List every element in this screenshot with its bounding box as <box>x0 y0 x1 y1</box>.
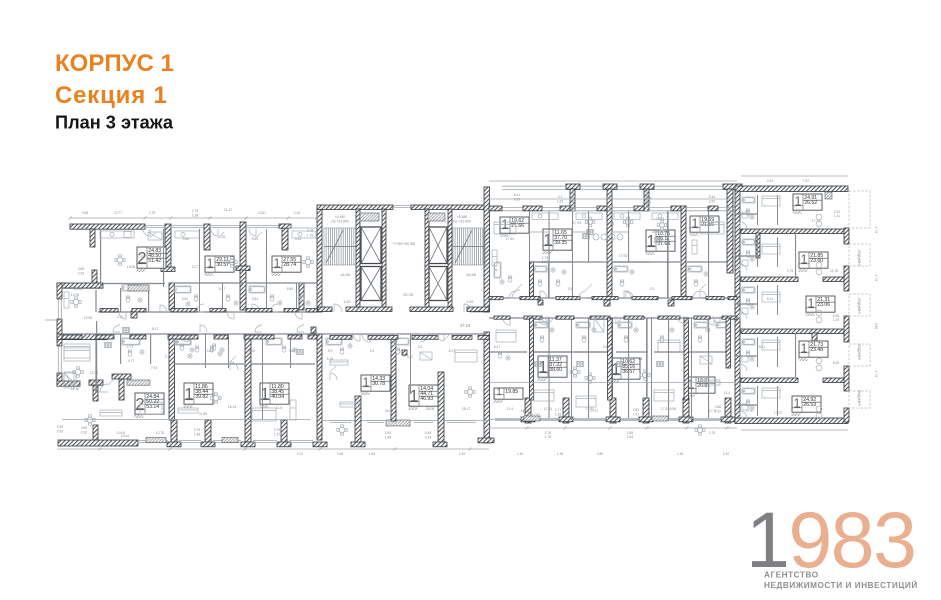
svg-text:1: 1 <box>184 385 193 403</box>
svg-text:+7.980 +56.380: +7.980 +56.380 <box>393 242 416 246</box>
svg-text:3.86: 3.86 <box>715 405 721 409</box>
svg-text:2.92: 2.92 <box>57 430 64 434</box>
svg-text:17.27: 17.27 <box>774 411 782 415</box>
svg-text:5.8: 5.8 <box>638 357 643 361</box>
svg-text:12.38: 12.38 <box>71 387 79 391</box>
svg-text:4.29: 4.29 <box>219 235 226 239</box>
svg-text:30.57: 30.57 <box>216 262 229 268</box>
svg-text:3.1: 3.1 <box>558 195 563 199</box>
svg-text:6.47: 6.47 <box>219 287 226 291</box>
svg-text:1.48: 1.48 <box>677 452 683 456</box>
svg-text:38.60: 38.60 <box>549 367 562 373</box>
svg-text:17.31: 17.31 <box>544 407 552 411</box>
svg-text:30.78: 30.78 <box>372 381 385 387</box>
svg-text:ЛОДЖИЯ: ЛОДЖИЯ <box>857 250 861 266</box>
svg-text:1.42: 1.42 <box>715 410 721 414</box>
svg-text:40.04: 40.04 <box>271 394 284 400</box>
svg-text:1.38: 1.38 <box>557 452 563 456</box>
svg-text:1: 1 <box>800 341 807 355</box>
svg-text:28.74: 28.74 <box>283 262 296 268</box>
svg-text:1.63: 1.63 <box>557 200 564 204</box>
svg-text:2.75: 2.75 <box>787 269 793 273</box>
svg-text:2.92: 2.92 <box>81 431 88 435</box>
svg-text:3.84: 3.84 <box>252 297 259 301</box>
svg-text:28.44: 28.44 <box>385 409 393 413</box>
svg-text:16.66: 16.66 <box>466 272 477 277</box>
svg-text:1.78: 1.78 <box>545 435 552 439</box>
svg-text:5.20: 5.20 <box>514 198 521 202</box>
svg-text:3.77: 3.77 <box>165 355 172 359</box>
svg-text:13.08: 13.08 <box>127 265 135 269</box>
svg-text:26.52: 26.52 <box>804 200 817 206</box>
svg-text:23.06: 23.06 <box>817 302 830 308</box>
svg-text:1.48: 1.48 <box>385 436 392 440</box>
svg-text:23.48: 23.48 <box>810 347 823 353</box>
svg-text:11.89: 11.89 <box>199 412 207 416</box>
svg-text:2.79: 2.79 <box>274 428 281 432</box>
svg-text:12.51: 12.51 <box>258 211 266 215</box>
svg-text:2.81: 2.81 <box>385 431 392 435</box>
svg-text:5.47: 5.47 <box>494 345 501 349</box>
svg-text:4.83: 4.83 <box>207 349 214 353</box>
svg-text:9.3: 9.3 <box>328 349 333 353</box>
svg-text:12.54: 12.54 <box>84 316 92 320</box>
svg-text:3.82: 3.82 <box>289 349 296 353</box>
svg-text:3.33: 3.33 <box>425 436 432 440</box>
svg-text:6.41: 6.41 <box>514 193 521 197</box>
svg-text:51.42: 51.42 <box>148 258 161 264</box>
svg-text:3.08: 3.08 <box>82 211 88 215</box>
svg-text:18.14: 18.14 <box>228 405 236 409</box>
svg-text:5.44: 5.44 <box>709 195 716 199</box>
svg-text:12.78: 12.78 <box>156 431 164 435</box>
svg-text:1.79: 1.79 <box>874 371 878 377</box>
svg-text:8.17: 8.17 <box>449 349 456 353</box>
svg-text:2.79: 2.79 <box>192 209 199 213</box>
svg-text:28.08: 28.08 <box>426 407 434 411</box>
svg-text:13.6: 13.6 <box>521 409 527 413</box>
svg-text:25.35: 25.35 <box>403 292 414 297</box>
svg-text:КОРПУС 1: КОРПУС 1 <box>55 50 174 77</box>
svg-text:5.45: 5.45 <box>833 361 840 365</box>
svg-text:12.08: 12.08 <box>71 293 79 297</box>
svg-text:1.63: 1.63 <box>627 435 634 439</box>
svg-text:1.38: 1.38 <box>194 433 201 437</box>
svg-text:13.4: 13.4 <box>724 391 730 395</box>
svg-text:13.4: 13.4 <box>507 407 513 411</box>
svg-text:1.19: 1.19 <box>833 318 840 322</box>
svg-text:1: 1 <box>691 216 698 230</box>
svg-text:17.27: 17.27 <box>746 409 754 413</box>
svg-text:5.84: 5.84 <box>182 297 189 301</box>
svg-text:1.79: 1.79 <box>874 227 878 233</box>
svg-text:3.85: 3.85 <box>874 323 878 329</box>
svg-text:12.08: 12.08 <box>74 287 82 291</box>
svg-text:3.3: 3.3 <box>370 349 375 353</box>
svg-text:17.81: 17.81 <box>573 221 582 225</box>
svg-text:План 3 этажа: План 3 этажа <box>55 113 174 133</box>
svg-text:25.17: 25.17 <box>462 407 470 411</box>
svg-text:+6.480: +6.480 <box>457 215 468 219</box>
svg-text:1: 1 <box>260 385 269 403</box>
svg-text:17.08: 17.08 <box>136 255 144 259</box>
svg-text:5.18: 5.18 <box>327 357 334 361</box>
svg-text:1.46: 1.46 <box>517 452 523 456</box>
svg-text:АГЕНТСТВО: АГЕНТСТВО <box>764 571 819 580</box>
svg-text:7.93: 7.93 <box>151 366 157 370</box>
svg-text:1: 1 <box>206 256 213 270</box>
svg-text:2.48: 2.48 <box>337 452 343 456</box>
svg-text:8.17: 8.17 <box>152 327 159 331</box>
svg-text:2.79: 2.79 <box>194 428 201 432</box>
svg-text:2.87: 2.87 <box>645 201 652 205</box>
svg-text:46.93: 46.93 <box>420 396 433 402</box>
svg-text:3.3: 3.3 <box>603 345 608 349</box>
svg-text:2.85: 2.85 <box>597 452 603 456</box>
svg-text:1: 1 <box>497 386 502 396</box>
svg-text:1: 1 <box>794 194 801 208</box>
svg-text:3.44: 3.44 <box>295 237 302 241</box>
svg-text:39.35: 39.35 <box>554 240 567 246</box>
svg-text:10.04: 10.04 <box>121 434 129 438</box>
svg-text:18.43: 18.43 <box>316 427 324 431</box>
svg-text:ЛОДЖИЯ: ЛОДЖИЯ <box>857 344 861 360</box>
svg-text:12.77: 12.77 <box>192 265 200 269</box>
svg-text:1.37: 1.37 <box>274 433 281 437</box>
svg-text:+6.480: +6.480 <box>335 215 346 219</box>
svg-text:2.10: 2.10 <box>297 452 303 456</box>
svg-text:2.10: 2.10 <box>459 452 465 456</box>
svg-text:3.3: 3.3 <box>650 287 655 291</box>
svg-text:47.19: 47.19 <box>460 323 471 328</box>
svg-text:2.92: 2.92 <box>78 272 85 276</box>
svg-text:2.78: 2.78 <box>709 431 716 435</box>
svg-text:14.78: 14.78 <box>830 269 838 273</box>
svg-text:4.62: 4.62 <box>344 300 351 304</box>
svg-text:Н2 +53.850: Н2 +53.850 <box>453 220 471 224</box>
svg-text:2.44: 2.44 <box>767 179 774 183</box>
svg-text:17.81: 17.81 <box>532 413 540 417</box>
svg-text:1.41: 1.41 <box>834 214 840 218</box>
svg-text:2.10: 2.10 <box>723 452 729 456</box>
svg-text:4.93: 4.93 <box>249 349 256 353</box>
svg-text:1.79: 1.79 <box>874 275 878 281</box>
svg-text:7.87: 7.87 <box>803 179 810 183</box>
svg-text:1: 1 <box>646 232 655 250</box>
svg-text:1: 1 <box>793 396 800 410</box>
svg-text:1: 1 <box>273 256 280 270</box>
svg-text:2.83: 2.83 <box>633 408 639 412</box>
svg-text:2.10: 2.10 <box>294 211 300 215</box>
svg-text:НЕДВИЖИМОСТИ И ИНВЕСТИЦИЙ: НЕДВИЖИМОСТИ И ИНВЕСТИЦИЙ <box>764 579 918 590</box>
svg-text:1: 1 <box>800 252 807 266</box>
svg-text:17.93: 17.93 <box>606 222 614 226</box>
svg-text:3.84: 3.84 <box>183 237 190 241</box>
svg-text:1: 1 <box>807 296 814 310</box>
svg-text:12.38: 12.38 <box>90 371 98 375</box>
svg-text:3.3: 3.3 <box>418 345 423 349</box>
svg-text:3.89: 3.89 <box>78 267 85 271</box>
svg-text:ЛОДЖИЯ: ЛОДЖИЯ <box>857 390 861 406</box>
svg-text:17.91: 17.91 <box>590 409 598 413</box>
svg-text:16.66: 16.66 <box>340 272 351 277</box>
svg-text:17.93: 17.93 <box>619 254 628 258</box>
svg-text:3.89: 3.89 <box>81 426 88 430</box>
svg-text:12.77: 12.77 <box>114 211 122 215</box>
svg-text:21.66: 21.66 <box>511 223 524 229</box>
svg-text:1: 1 <box>538 358 547 376</box>
svg-text:4.48: 4.48 <box>425 431 432 435</box>
svg-text:1: 1 <box>543 231 552 249</box>
svg-text:Н3 +53.850: Н3 +53.850 <box>331 220 349 224</box>
svg-text:26.53: 26.53 <box>803 402 816 408</box>
svg-text:3.87: 3.87 <box>407 355 414 359</box>
svg-text:11.8: 11.8 <box>276 406 282 410</box>
svg-text:8.11: 8.11 <box>767 297 773 301</box>
svg-text:1.38: 1.38 <box>192 214 199 218</box>
svg-text:21.47: 21.47 <box>224 208 232 212</box>
svg-text:9.49: 9.49 <box>57 425 64 429</box>
svg-text:2.77: 2.77 <box>555 408 561 412</box>
svg-text:1.41: 1.41 <box>633 413 639 417</box>
svg-text:1.38: 1.38 <box>555 413 561 417</box>
svg-text:Секция 1: Секция 1 <box>55 82 168 109</box>
svg-text:4.73: 4.73 <box>127 345 134 349</box>
svg-text:4.62: 4.62 <box>467 300 474 304</box>
svg-text:19.85: 19.85 <box>505 389 518 395</box>
svg-text:1.78: 1.78 <box>307 234 314 238</box>
svg-text:17.81: 17.81 <box>506 237 514 241</box>
svg-text:5.84: 5.84 <box>287 287 294 291</box>
svg-text:2.78: 2.78 <box>149 211 155 215</box>
svg-text:2.87: 2.87 <box>709 200 716 204</box>
svg-text:1: 1 <box>362 375 369 389</box>
svg-text:ЛОДЖИЯ: ЛОДЖИЯ <box>857 298 861 314</box>
svg-text:39.82: 39.82 <box>195 394 208 400</box>
svg-text:15.98: 15.98 <box>668 407 676 411</box>
svg-text:4.77: 4.77 <box>128 359 134 363</box>
svg-text:1.48: 1.48 <box>369 452 375 456</box>
svg-text:3.3: 3.3 <box>568 287 573 291</box>
svg-text:5.84: 5.84 <box>252 237 259 241</box>
